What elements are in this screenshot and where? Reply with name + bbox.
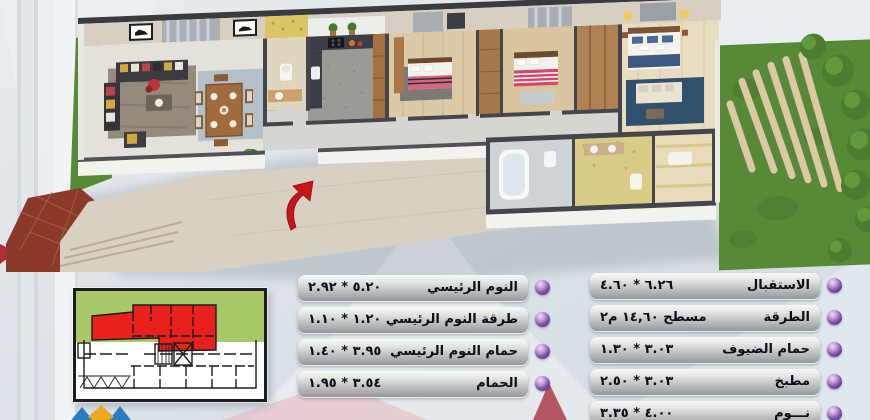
bullet-icon — [535, 280, 550, 295]
bullet-icon — [535, 376, 550, 391]
living-room — [84, 38, 278, 158]
room-dimensions: مسطح ١٤,٦٠ م٢ — [600, 310, 707, 325]
bathrooms — [486, 128, 716, 228]
bullet-icon — [535, 344, 550, 359]
bedroom — [502, 26, 576, 113]
room-dimensions: ٣.٩٥ * ١.٤٠ — [308, 344, 381, 359]
bullet-icon — [827, 310, 842, 325]
room-dimension-bar: الحمام ٣.٥٤ * ١.٩٥ — [298, 371, 528, 397]
room-dimension-bar: نـــوم ٤.٠٠ * ٣.٣٥ — [590, 401, 820, 420]
guest-bathroom — [265, 37, 308, 111]
table-row: طرقة النوم الرئيسي ١.٢٠ * ١.١٠ — [298, 306, 550, 333]
table-row: الاستقبال ٦.٢٦ * ٤.٦٠ — [590, 272, 842, 299]
toilet — [630, 173, 642, 189]
room-dimensions: ٣.٠٣ * ١.٣٠ — [600, 342, 673, 357]
logo-diamond — [88, 405, 114, 420]
key-plan-drawing — [76, 291, 264, 399]
room-dimensions: ٦.٢٦ * ٤.٦٠ — [600, 278, 673, 293]
living-window-curtain — [162, 18, 220, 42]
table-row: نـــوم ٤.٠٠ * ٣.٣٥ — [590, 400, 842, 420]
dimension-table-main: الاستقبال ٦.٢٦ * ٤.٦٠ الطرقة مسطح ١٤,٦٠ … — [590, 272, 842, 420]
bullet-icon — [535, 312, 550, 327]
room-dimension-bar: حمام الضيوف ٣.٠٣ * ١.٣٠ — [590, 337, 820, 363]
wardrobe-corridor — [576, 24, 620, 110]
room-dimensions: ٤.٠٠ * ٣.٣٥ — [600, 406, 673, 420]
bullet-icon — [827, 278, 842, 293]
bullet-icon — [827, 374, 842, 389]
room-name: حمام الضيوف — [722, 342, 810, 357]
dimension-table-master: النوم الرئيسي ٥.٢٠ * ٢.٩٢ طرقة النوم الر… — [298, 274, 550, 402]
bullet-icon — [827, 342, 842, 357]
sink — [311, 66, 320, 79]
floorplan-3d-render — [0, 0, 870, 290]
room-name: حمام النوم الرئيسي — [390, 344, 518, 359]
room-dimension-bar: مطبخ ٣.٠٣ * ٢.٥٠ — [590, 369, 820, 395]
room-name: الاستقبال — [747, 278, 810, 293]
bedroom — [389, 30, 478, 118]
table-row: مطبخ ٣.٠٣ * ٢.٥٠ — [590, 368, 842, 395]
room-name: نـــوم — [774, 406, 810, 420]
table-row: حمام النوم الرئيسي ٣.٩٥ * ١.٤٠ — [298, 338, 550, 365]
room-dimensions: ٣.٥٤ * ١.٩٥ — [308, 376, 381, 391]
developer-logo — [62, 402, 146, 420]
room-dimension-bar: الطرقة مسطح ١٤,٦٠ م٢ — [590, 305, 820, 331]
room-dimensions: ٣.٠٣ * ٢.٥٠ — [600, 374, 673, 389]
toilet — [544, 151, 556, 167]
master-bedroom — [620, 20, 719, 136]
room-dimensions: ٥.٢٠ * ٢.٩٢ — [308, 280, 381, 295]
wardrobe — [394, 37, 404, 93]
floorplan-poster: النوم الرئيسي ٥.٢٠ * ٢.٩٢ طرقة النوم الر… — [0, 0, 870, 420]
room-dimension-bar: حمام النوم الرئيسي ٣.٩٥ * ١.٤٠ — [298, 339, 528, 365]
room-dimension-bar: الاستقبال ٦.٢٦ * ٤.٦٠ — [590, 273, 820, 299]
room-name: الطرقة — [764, 310, 810, 325]
stove — [328, 37, 344, 48]
room-dimension-bar: النوم الرئيسي ٥.٢٠ * ٢.٩٢ — [298, 275, 528, 301]
roof-garden — [715, 31, 870, 271]
room-dimension-bar: طرقة النوم الرئيسي ١.٢٠ * ١.١٠ — [298, 307, 528, 333]
room-name: النوم الرئيسي — [427, 280, 518, 295]
table-row: النوم الرئيسي ٥.٢٠ * ٢.٩٢ — [298, 274, 550, 301]
kitchen — [308, 34, 385, 125]
room-name: الحمام — [476, 376, 518, 391]
table-row: حمام الضيوف ٣.٠٣ * ١.٣٠ — [590, 336, 842, 363]
room-name: طرقة النوم الرئيسي — [386, 312, 518, 327]
table-row: الحمام ٣.٥٤ * ١.٩٥ — [298, 370, 550, 397]
key-plan-thumbnail — [73, 288, 267, 402]
bullet-icon — [827, 406, 842, 420]
room-name: مطبخ — [775, 374, 810, 389]
room-dimensions: ١.٢٠ * ١.١٠ — [308, 312, 381, 327]
table-row: الطرقة مسطح ١٤,٦٠ م٢ — [590, 304, 842, 331]
